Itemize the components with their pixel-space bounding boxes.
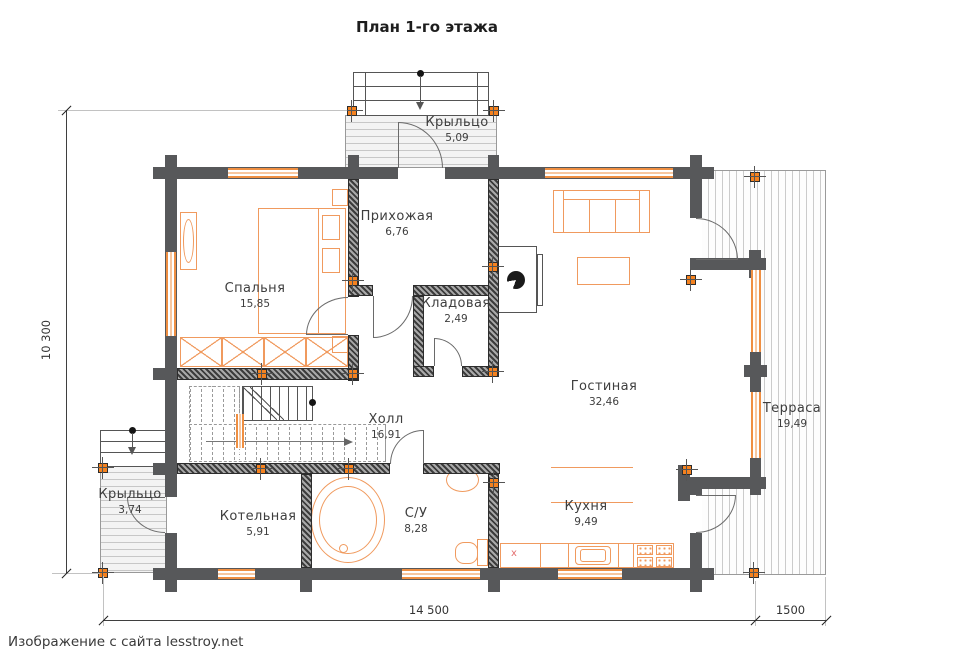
log-end [690,580,702,592]
wardrobe-section [222,337,264,367]
column-marker [344,464,354,474]
column-marker [256,464,266,474]
wardrobe-section [306,337,348,367]
extension-line [52,573,100,574]
log-end [749,250,761,258]
source-caption: Изображение с сайта lesstroy.net [8,634,243,650]
column-marker [750,172,760,182]
dimension-line-bottom [103,620,826,621]
room-label-porch-left: Крыльцо 3,74 [85,486,175,517]
counter-divider [618,543,619,568]
room-label-hallway: Прихожая 6,76 [337,208,457,239]
log-end [690,155,702,167]
room-label-hall: Холл 16,91 [326,411,446,442]
room-area: 15,85 [185,297,325,311]
door-arc [434,338,462,366]
window [402,569,480,579]
column-marker [682,465,692,475]
column-marker [488,367,498,377]
dimension-line-vertical [66,110,67,573]
column-marker [347,106,357,116]
window [218,569,255,579]
sofa-seat [563,199,640,233]
top-porch-stair-stringer [477,72,478,116]
interior-wall [413,366,434,377]
room-name: Крыльцо [397,114,517,131]
window [228,168,298,178]
terrace-edge-top [702,170,826,171]
terrace-edge-bottom [702,574,826,575]
log-end [678,489,690,501]
room-area: 19,49 [732,417,852,431]
counter-divider [568,543,569,568]
stove-burner [656,557,672,567]
room-label-bedroom: Спальня 15,85 [185,280,325,311]
bathtub-drain [339,544,348,553]
wardrobe-section [264,337,306,367]
page-title: План 1-го этажа [0,18,854,36]
living-room-bay [690,270,751,477]
stair-newel-post [309,399,316,406]
stove-burner [656,545,672,555]
window [236,414,244,448]
room-name: С/У [356,505,476,522]
exterior-wall-right [690,533,702,580]
stove-burner [637,557,653,567]
door-leaf [434,338,435,366]
room-label-terrace: Терраса 19,49 [732,400,852,431]
stair-break-line [250,387,284,420]
room-label-bathroom: С/У 8,28 [356,505,476,536]
column-marker [488,262,498,272]
room-area: 5,09 [397,131,517,145]
column-marker [98,463,108,473]
nightstand [332,189,348,206]
room-name: Спальня [185,280,325,297]
room-label-storage: Кладовая 2,49 [396,295,516,326]
top-porch-stair-tread [354,100,488,101]
pillow [322,248,340,273]
window [545,168,673,178]
room-name: Холл [326,411,446,428]
column-marker [749,568,759,578]
toilet-bowl [455,542,478,564]
top-porch-stair-tread [354,86,488,87]
terrace-column [744,365,767,377]
door-leaf [306,334,348,335]
wardrobe-section [180,337,222,367]
kitchen-bar-line [551,467,633,468]
stair-arrow-line [206,441,344,442]
room-area: 9,49 [526,515,646,529]
room-area: 8,28 [356,522,476,536]
interior-wall [488,179,499,377]
floor-plan-canvas: x [0,0,970,660]
counter-x-mark: x [506,548,522,559]
window [751,270,761,352]
interior-wall [423,463,500,474]
room-name: Крыльцо [85,486,175,503]
log-end [488,155,499,167]
sofa-cushion-line [615,199,616,233]
room-name: Котельная [198,508,318,525]
room-area: 5,91 [198,525,318,539]
room-label-boiler: Котельная 5,91 [198,508,318,539]
dimension-label-width-terrace: 1500 [755,603,826,617]
door-leaf [696,259,738,260]
column-marker [348,276,358,286]
stair-arrow-head-icon [128,447,136,455]
exterior-wall-right [690,167,702,218]
top-porch-stair-stringer [365,72,366,116]
room-label-living: Гостиная 32,46 [544,378,664,409]
log-end [488,580,500,592]
kitchen-sink-basin [580,549,606,562]
room-name: Кухня [526,498,646,515]
log-end [702,167,714,179]
coffee-table [577,257,630,285]
log-end [348,155,359,167]
stair-arrow-line [420,76,421,103]
fireplace-flue-icon [507,271,525,289]
sofa-cushion-line [589,199,590,233]
room-area: 2,49 [396,312,516,326]
room-label-porch-top: Крыльцо 5,09 [397,114,517,145]
room-area: 32,46 [544,395,664,409]
room-name: Гостиная [544,378,664,395]
log-end [165,155,177,167]
toilet-tank [477,539,488,566]
interior-wall [177,368,359,380]
terrace-edge-right [825,170,826,575]
log-end [153,167,165,179]
log-end [153,368,165,380]
room-area: 6,76 [337,225,457,239]
column-marker [348,369,358,379]
room-area: 16,91 [326,428,446,442]
room-name: Прихожая [337,208,457,225]
column-marker [686,275,696,285]
column-marker [257,369,267,379]
log-end [300,580,312,592]
door-leaf [696,495,736,496]
counter-divider [540,543,541,568]
left-porch-stair-tread [101,441,166,442]
stove-burner [637,545,653,555]
log-end [153,568,165,580]
log-end [165,580,177,592]
room-name: Кладовая [396,295,516,312]
dimension-label-width-main: 14 500 [379,603,479,617]
column-marker [489,478,499,488]
window [166,252,176,336]
dimension-label-height: 10 300 [39,310,53,370]
window [558,569,622,579]
room-label-kitchen: Кухня 9,49 [526,498,646,529]
log-end [702,568,714,580]
terrace-column [750,458,761,495]
extension-line [58,110,347,111]
room-name: Терраса [732,400,852,417]
room-area: 3,74 [85,503,175,517]
counter-divider [633,543,634,568]
log-end [153,463,165,475]
dresser-mirror [183,219,194,263]
door-leaf [373,296,374,338]
fireplace-step [537,254,543,306]
stair-arrow-head-icon [416,102,424,110]
sofa-armrest [639,190,650,233]
